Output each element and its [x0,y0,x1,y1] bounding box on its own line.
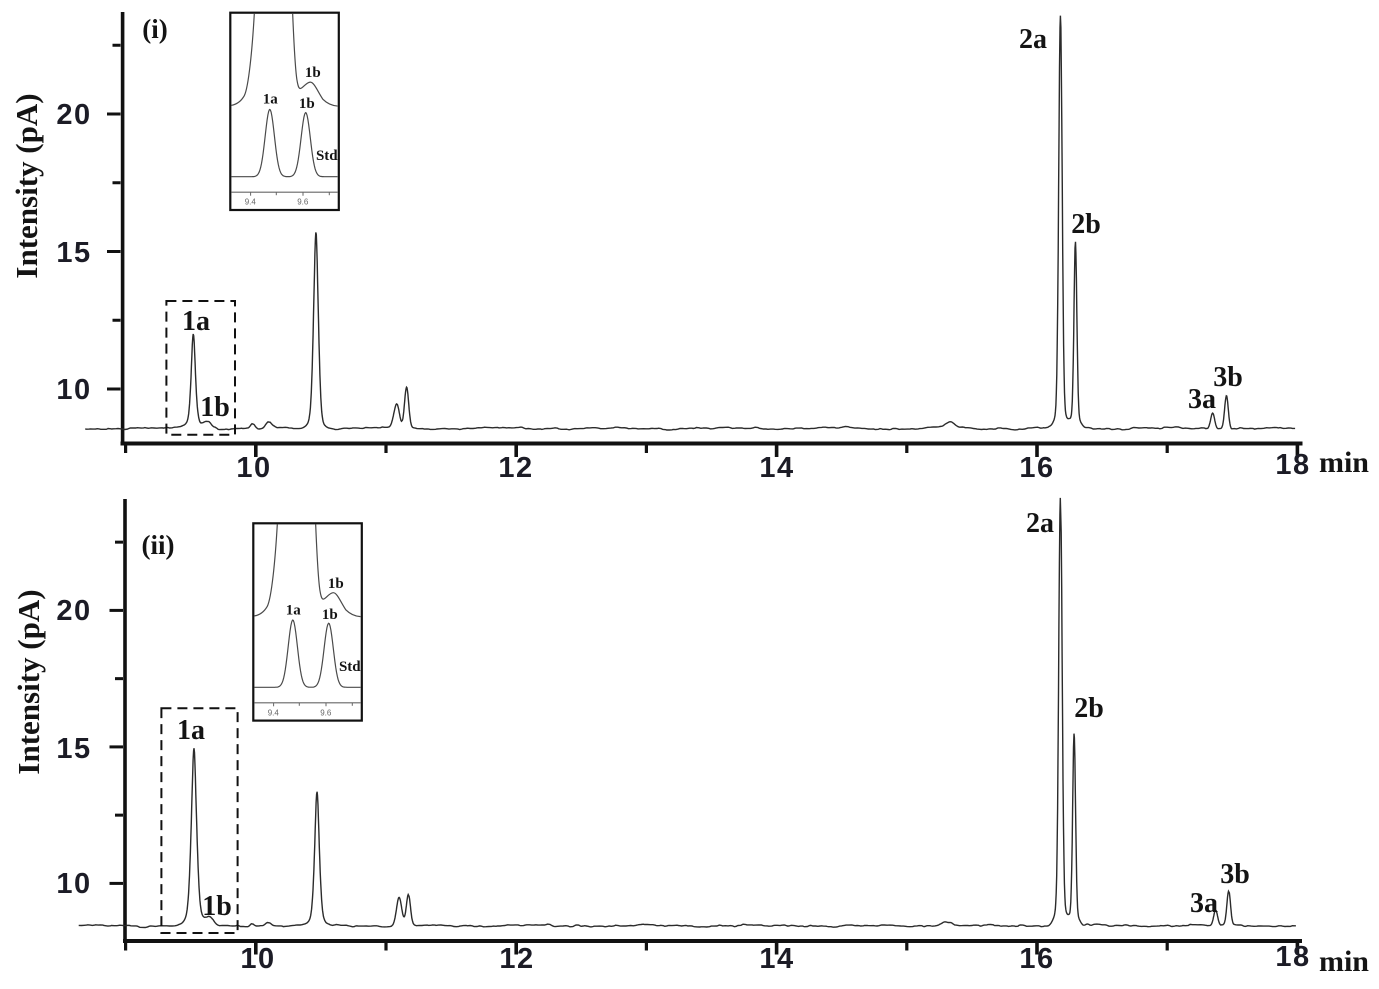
svg-text:1a: 1a [263,92,279,108]
svg-text:2a: 2a [1026,508,1054,539]
svg-text:12: 12 [498,452,533,484]
svg-text:Intensity (pA): Intensity (pA) [9,93,44,278]
svg-text:9.4: 9.4 [268,708,280,717]
svg-text:2b: 2b [1071,209,1101,240]
svg-text:Std: Std [339,659,361,675]
svg-text:14: 14 [759,452,794,484]
svg-text:15: 15 [56,733,91,765]
svg-text:20: 20 [56,595,91,627]
svg-text:2b: 2b [1074,693,1104,724]
svg-text:1a: 1a [182,306,210,337]
svg-text:min: min [1319,446,1369,479]
svg-text:2a: 2a [1019,24,1047,55]
svg-text:16: 16 [1019,943,1054,975]
svg-text:10: 10 [56,374,91,406]
svg-text:Std: Std [316,148,338,164]
svg-text:1b: 1b [322,607,338,623]
svg-text:Intensity (pA): Intensity (pA) [11,589,46,774]
svg-text:15: 15 [56,237,91,269]
svg-text:14: 14 [759,943,794,975]
svg-text:1a: 1a [177,715,205,746]
svg-text:10: 10 [236,452,271,484]
svg-text:9.6: 9.6 [297,198,309,207]
svg-text:3b: 3b [1213,362,1243,393]
svg-text:1b: 1b [200,392,230,423]
svg-text:3a: 3a [1188,384,1216,415]
svg-text:10: 10 [56,868,91,900]
svg-text:12: 12 [499,943,534,975]
svg-text:9.6: 9.6 [320,708,332,717]
svg-text:(ii): (ii) [142,530,175,560]
svg-text:1b: 1b [299,96,315,112]
svg-text:18: 18 [1275,941,1310,973]
svg-text:3a: 3a [1190,888,1218,919]
svg-text:1a: 1a [286,602,302,618]
svg-text:9.4: 9.4 [245,198,257,207]
svg-text:18: 18 [1275,449,1310,481]
svg-text:1b: 1b [305,65,321,81]
svg-text:min: min [1319,945,1369,978]
svg-text:(i): (i) [142,14,167,44]
svg-text:20: 20 [56,99,91,131]
svg-text:10: 10 [240,943,275,975]
svg-text:3b: 3b [1220,859,1250,890]
svg-text:1b: 1b [328,576,344,592]
svg-text:16: 16 [1019,452,1054,484]
svg-text:1b: 1b [202,891,232,922]
